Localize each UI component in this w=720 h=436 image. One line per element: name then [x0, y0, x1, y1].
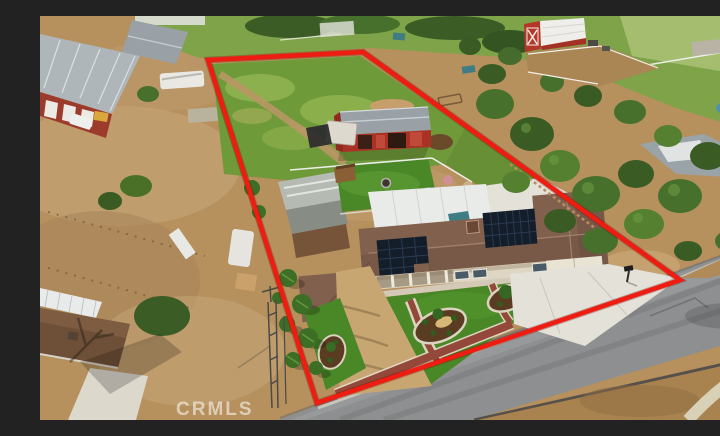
tree — [134, 296, 190, 336]
fire-pit — [382, 179, 391, 188]
chimney-neighbor — [67, 331, 78, 341]
shade-canopy — [306, 124, 332, 148]
listing-aerial-photo: CRMLS — [40, 16, 720, 420]
patio-umbrella-pink — [443, 175, 453, 185]
tractor — [393, 32, 406, 40]
aerial-scene: CRMLS — [40, 16, 720, 420]
chimney — [466, 220, 479, 233]
crmls-watermark: CRMLS — [176, 399, 254, 420]
bed-tree — [499, 285, 513, 299]
